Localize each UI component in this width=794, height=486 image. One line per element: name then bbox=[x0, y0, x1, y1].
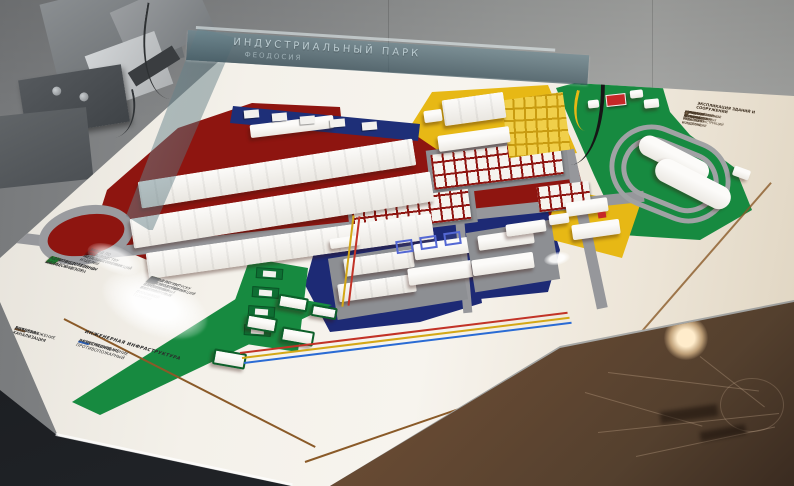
small-building bbox=[630, 89, 644, 98]
small-building bbox=[263, 271, 276, 278]
etched-map-curve bbox=[720, 378, 784, 432]
small-building bbox=[423, 109, 442, 123]
etched-map-shading bbox=[699, 424, 746, 442]
museum-photo-of-industrial-park-scale-model: ПРОИЗВОДСТВЕННАЯ ЗОНА ПРОИЗВОДСТВЕННО-СК… bbox=[0, 0, 794, 486]
small-building bbox=[244, 109, 260, 118]
machine-base bbox=[0, 107, 93, 189]
wall-seam bbox=[652, 0, 653, 92]
small-building bbox=[330, 118, 346, 127]
legend-label: БЫТОВАЯ КАНАЛИЗАЦИЯ bbox=[12, 326, 48, 343]
green-pad-building bbox=[252, 286, 280, 299]
small-building bbox=[272, 112, 288, 121]
red-roof-building bbox=[605, 93, 626, 107]
parking-square bbox=[395, 239, 414, 254]
small-building bbox=[362, 121, 378, 130]
parking-square bbox=[443, 231, 462, 246]
small-building bbox=[259, 290, 272, 297]
parking-square bbox=[419, 235, 438, 250]
small-building bbox=[644, 98, 660, 109]
legend-factories-right: ЗАВОД ПО ВЫПУСКУ МЕТАЛЛОКОНСТРУКЦИЙ НА О… bbox=[152, 276, 244, 302]
green-pad-building bbox=[256, 267, 284, 280]
screw bbox=[52, 86, 62, 96]
screw bbox=[79, 92, 89, 102]
etched-subtitle: ФЕОДОСИЯ bbox=[244, 51, 302, 63]
explication-list: ЭКСПЛИКАЦИЯ ЗДАНИЙ И СООРУЖЕНИЙ АДМИНИСТ… bbox=[685, 100, 779, 125]
small-building bbox=[300, 115, 316, 124]
red-small-structure bbox=[598, 211, 607, 218]
